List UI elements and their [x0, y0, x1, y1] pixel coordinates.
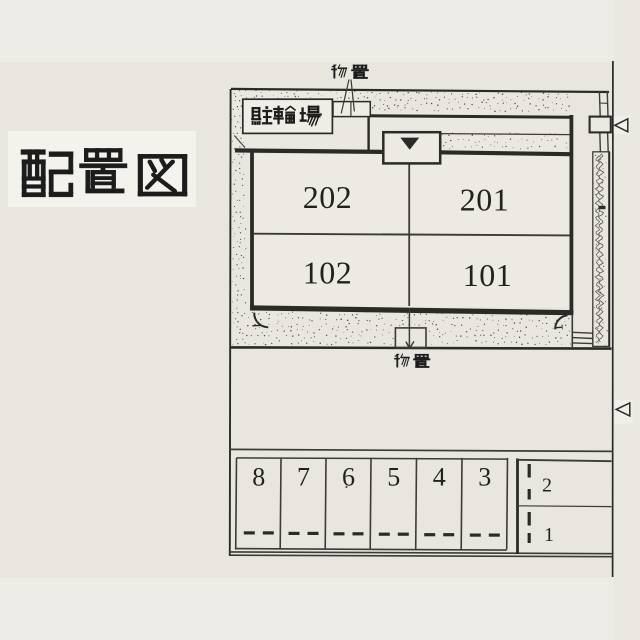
- svg-text:202: 202: [303, 179, 353, 215]
- svg-text:8: 8: [252, 463, 265, 492]
- svg-text:3: 3: [478, 463, 491, 492]
- svg-text:102: 102: [303, 255, 353, 291]
- svg-text:101: 101: [463, 257, 513, 293]
- svg-text:4: 4: [433, 463, 446, 492]
- svg-text:201: 201: [460, 182, 510, 218]
- svg-text:6: 6: [342, 463, 355, 492]
- svg-text:7: 7: [297, 463, 310, 492]
- svg-text:5: 5: [387, 463, 400, 492]
- svg-text:1: 1: [544, 524, 554, 546]
- svg-text:2: 2: [542, 475, 552, 497]
